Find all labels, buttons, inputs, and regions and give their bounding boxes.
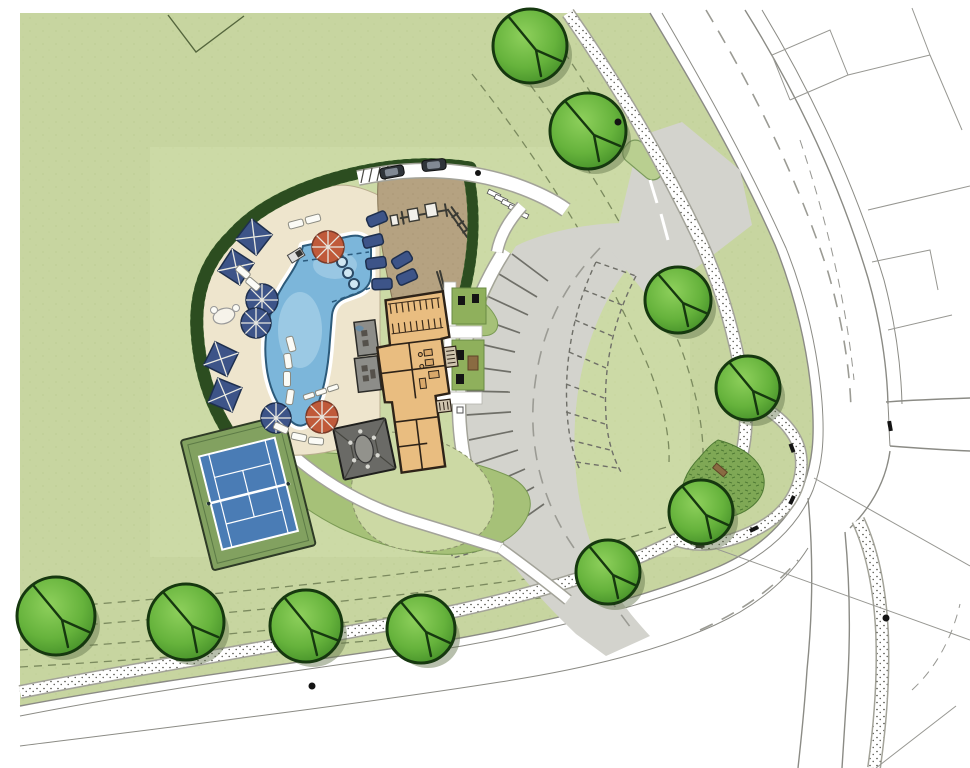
parked-car bbox=[421, 158, 446, 171]
deck-chair bbox=[233, 305, 240, 312]
site-plan-svg bbox=[0, 0, 970, 768]
umbrella-navy bbox=[241, 308, 271, 338]
site-plan-figure bbox=[0, 0, 970, 768]
umbrella-orange bbox=[312, 231, 344, 263]
courtyard-green bbox=[452, 288, 486, 324]
east-stair bbox=[444, 346, 458, 367]
deck-chair bbox=[211, 307, 218, 314]
west-porch-roof bbox=[354, 320, 379, 356]
west-porch-roof bbox=[354, 356, 381, 393]
pavilion bbox=[333, 418, 396, 480]
umbrella-orange bbox=[306, 401, 338, 433]
picnic-table bbox=[468, 356, 478, 370]
